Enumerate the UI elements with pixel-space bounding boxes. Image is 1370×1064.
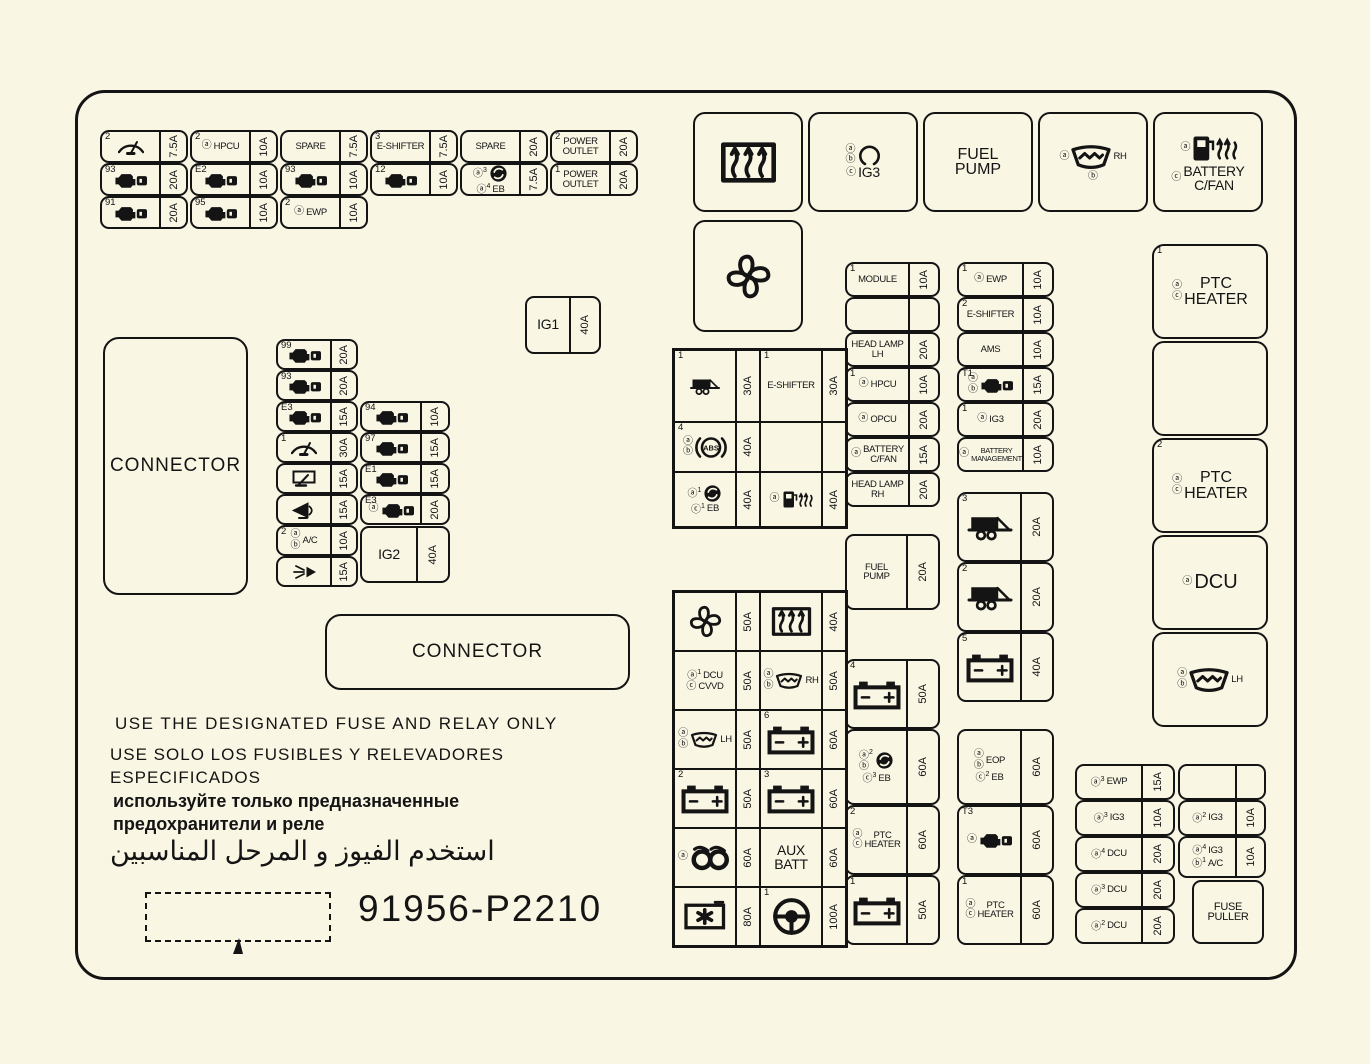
fuse-cell: E315A: [276, 401, 358, 432]
amp-cell: 10A: [429, 165, 456, 194]
amp-rating: 80A: [742, 907, 754, 927]
fuse-line: [768, 782, 814, 815]
horn-icon: [291, 501, 317, 519]
circled-b-mark: ⓑ: [683, 447, 693, 458]
amp-cell: 50A: [736, 710, 760, 769]
fuse-number: 93: [281, 372, 292, 382]
fuse-line: [735, 152, 762, 173]
fuse-line: [375, 470, 408, 488]
amp-cell: 20A: [908, 404, 938, 435]
amp-cell: 10A: [1235, 802, 1264, 834]
amp-rating: 50A: [917, 900, 929, 920]
amp-cell: 40A: [569, 298, 599, 352]
amp-rating: 20A: [618, 137, 630, 157]
fuse-number: 1: [678, 351, 683, 361]
amp-rating: 20A: [1031, 587, 1043, 607]
amp-rating: 20A: [1152, 844, 1164, 864]
amp-cell: 10A: [1022, 334, 1052, 365]
fuse-cell: [1178, 764, 1266, 800]
fuse-table-middle: 130A1E-SHIFTER30A4ⓐⓑABS40Aⓐ1ⓒ1EB40Aⓐ40A: [672, 348, 848, 529]
fuse-label: EB: [492, 185, 504, 194]
amp-rating: 10A: [1032, 270, 1044, 290]
fuse-label: FUEL PUMP: [955, 147, 1001, 177]
fuse-cell: 220A: [957, 562, 1054, 632]
fuse-number: 93: [105, 165, 116, 175]
fuse-line: ⓐ: [967, 831, 1012, 849]
wiper-rear-icon: [292, 470, 316, 487]
amp-rating: 15A: [338, 500, 350, 520]
amp-rating: 60A: [828, 789, 840, 809]
fuse-line: ⓐ3IG3: [1094, 812, 1124, 825]
amp-cell: 60A: [1020, 731, 1052, 803]
fuse-line: [294, 171, 327, 189]
fuse-line: ⓐⓑABS: [683, 435, 727, 460]
relay-box: CONNECTOR: [103, 337, 248, 595]
fuse-number: 3: [375, 132, 380, 142]
amp-rating: 10A: [1032, 340, 1044, 360]
fuse-line: [772, 605, 811, 638]
fuse-line: ⓒBATTERY C/FAN: [1171, 165, 1244, 192]
fuse-line: [288, 377, 321, 395]
amp-rating: 20A: [528, 137, 540, 157]
fuse-number: 2: [850, 807, 855, 817]
amp-rating: 15A: [1152, 772, 1164, 792]
amp-cell: 20A: [908, 334, 938, 365]
warning-text-spanish: USE SOLO LOS FUSIBLES Y RELEVADORES ESPE…: [110, 744, 504, 790]
engine-icon: [979, 831, 1012, 849]
warning-text-russian: используйте только предназначенные предо…: [113, 790, 459, 837]
fuse-number: 1: [962, 264, 967, 274]
fuse-label: A/C: [303, 536, 318, 545]
fuse-number: 12: [375, 165, 386, 175]
battery-icon: [964, 651, 1015, 683]
circled-a-mark: ⓐ: [1172, 475, 1182, 486]
spray-icon: [293, 564, 316, 580]
amp-cell: 7.5A: [339, 132, 366, 161]
amp-rating: 15A: [429, 438, 441, 458]
fuse-label: PTC HEATER: [1184, 276, 1248, 306]
circled-b-mark: ⓑ: [678, 740, 688, 751]
amp-rating: 20A: [918, 480, 930, 500]
fuse-cell: [760, 592, 822, 651]
fuse-cell: ⓐ: [674, 828, 736, 887]
amp-cell: 60A: [822, 710, 846, 769]
fuse-number: 2: [281, 527, 286, 537]
fuse-cell: HEAD LAMP LH20A: [845, 332, 940, 367]
fuse-number: T3: [962, 807, 973, 817]
fuse-cell: ⓐ3EWP15A: [1075, 764, 1175, 800]
fuse-number: 4: [850, 661, 855, 671]
amp-cell: 10A: [1022, 264, 1052, 295]
circled-a-mark: ⓐ: [967, 835, 977, 846]
fuse-line: [772, 897, 811, 936]
fuse-line: ⓐⓒPTC HEATER: [1172, 276, 1248, 306]
fuse-line: ⓐDCU: [1182, 573, 1237, 592]
amp-cell: 7.5A: [429, 132, 456, 161]
engine-icon: [204, 171, 237, 189]
fuse-cell: E210A: [190, 163, 278, 196]
circled-a-mark: ⓐ: [202, 141, 212, 152]
amp-rating: 10A: [1032, 305, 1044, 325]
fuse-number: 1: [555, 165, 560, 175]
abs-icon: ABS: [695, 435, 727, 460]
amp-rating: 10A: [918, 270, 930, 290]
fuse-number: E3: [281, 403, 293, 413]
fuse-cell: ⓐ1ⓒ1EB: [674, 472, 736, 527]
fuse-cell: ⓐ2IG310A: [1178, 800, 1266, 836]
engine-icon: [381, 501, 414, 519]
fuse-line: ⓐⓑEOP: [974, 750, 1005, 771]
fuse-label: MODULE: [858, 275, 897, 284]
amp-cell: 20A: [1141, 838, 1173, 870]
fuse-line: E-SHIFTER: [967, 310, 1014, 319]
amp-rating: 60A: [1031, 830, 1043, 850]
relay-row-top: ⓐⓑⓒIG3FUEL PUMPⓐRHⓑⓐⓒBATTERY C/FAN: [693, 112, 1263, 212]
fuse-column-bottom-right-a: ⓐ3EWP15Aⓐ3IG310Aⓐ4DCU20Aⓐ3DCU20Aⓐ2DCU20A: [1075, 764, 1175, 944]
fuse-label: EB: [878, 774, 890, 783]
fuse-label: LH: [1231, 675, 1243, 684]
fuse-line: [685, 900, 726, 933]
fuse-line: [768, 723, 814, 756]
fuse-number: 1: [962, 404, 967, 414]
engine-icon: [114, 171, 147, 189]
fuse-ig2: IG240A: [360, 526, 450, 583]
fuse-label: PTC HEATER: [1184, 470, 1248, 500]
amp-rating: 40A: [579, 315, 591, 335]
fuse-cell: 9120A: [100, 196, 188, 229]
amp-cell: 40A: [822, 472, 846, 527]
fuse-line: ⓐHPCU: [202, 141, 240, 152]
amp-rating: 30A: [828, 376, 840, 396]
circled-a-mark: ⓐ3: [1094, 812, 1108, 825]
amp-rating: 10A: [918, 375, 930, 395]
amp-cell: 10A: [339, 165, 366, 194]
coil-icon: [689, 843, 734, 872]
amp-cell: 50A: [736, 651, 760, 710]
fuse-cell: 450A: [845, 659, 940, 729]
fuse-label: CONNECTOR: [110, 457, 241, 475]
circled-a-mark: ⓐ: [851, 449, 861, 460]
fuse-cell: 15A: [276, 494, 358, 525]
fuse-cell: AMS10A: [957, 332, 1054, 367]
fuse-line: [969, 511, 1011, 543]
engine-icon: [204, 204, 237, 222]
fuse-cell: ⓐBATTERY C/FAN15A: [845, 437, 940, 472]
circled-a-mark: ⓐ: [678, 852, 688, 863]
fuse-cell: 1MODULE10A: [845, 262, 940, 297]
wiper-icon: [118, 138, 144, 155]
relay-box: ⓐⓑLH: [1152, 632, 1268, 727]
engine-icon: [114, 204, 147, 222]
fuse-label: CONNECTOR: [412, 643, 543, 661]
amp-rating: 50A: [742, 671, 754, 691]
fuse-line: [118, 138, 144, 155]
fuse-label: HPCU: [871, 380, 897, 389]
fuse-line: [690, 376, 720, 396]
amp-cell: 10A: [1141, 802, 1173, 834]
fuse-line: IG2: [378, 548, 400, 561]
fuse-cell: ⓐ1DCUⓒCVVD: [674, 651, 736, 710]
amp-rating: 20A: [429, 500, 441, 520]
amp-cell: 60A: [822, 828, 846, 887]
fuse-number: 1: [1157, 246, 1162, 256]
washer-icon: [1070, 143, 1112, 172]
fuse-line: ⓐ1: [688, 484, 723, 503]
fuse-cell: 1ⓐIG320A: [957, 402, 1054, 437]
amp-cell: 40A: [822, 592, 846, 651]
fuse-number: 1: [764, 351, 769, 361]
engine-icon: [375, 439, 408, 457]
relay-box: ⓐⓒBATTERY C/FAN: [1153, 112, 1263, 212]
amp-cell: 40A: [736, 422, 760, 472]
circled-a-mark: ⓐ2: [859, 749, 873, 762]
fuse-line: ⓒIG3: [846, 166, 880, 179]
fuse-label: FUSE PULLER: [1208, 902, 1249, 923]
fuse-line: ⓐOPCU: [858, 414, 896, 425]
fuse-label: OPCU: [870, 415, 896, 424]
amp-cell: 50A: [736, 769, 760, 828]
fuse-cell: 2E-SHIFTER10A: [957, 297, 1054, 332]
fuse-cell: 1210A: [370, 163, 458, 196]
amp-rating: 20A: [1152, 916, 1164, 936]
amp-cell: 20A: [1022, 404, 1052, 435]
amp-cell: 20A: [1020, 494, 1052, 560]
fuse-line: ⓐⓑRH: [763, 670, 818, 691]
fuse-label: BATTERY C/FAN: [1183, 165, 1244, 192]
amp-rating: 10A: [1245, 847, 1257, 867]
fuse-line: [293, 564, 316, 580]
fuse-number: 2: [678, 770, 683, 780]
fuse-line: ⓐBATTERY MANAGEMENT: [959, 447, 1022, 461]
fuse-cell: 9510A: [190, 196, 278, 229]
circled-a-mark: ⓐ1: [687, 669, 701, 682]
amp-rating: 10A: [338, 531, 350, 551]
fuse-line: [204, 204, 237, 222]
fuse-cell: E115A: [360, 463, 450, 494]
fuse-number: 2: [285, 198, 290, 208]
amp-cell: 20A: [609, 165, 636, 194]
fuse-line: [114, 204, 147, 222]
fuse-label: IG3: [1110, 813, 1124, 822]
fuse-line: ⓐ3EWP: [1091, 776, 1128, 789]
circled-b-mark: ⓑ: [763, 681, 773, 692]
fuse-line: [291, 439, 317, 456]
fuse-cell: IG140A: [525, 296, 601, 354]
amp-rating: 20A: [338, 345, 350, 365]
amp-cell: 60A: [736, 828, 760, 887]
fuse-number: 4: [678, 423, 683, 433]
fuse-line: CONNECTOR: [412, 643, 543, 661]
circled-a-mark: ⓐ3: [1091, 776, 1105, 789]
amp-rating: 20A: [918, 340, 930, 360]
amp-cell: 80A: [736, 887, 760, 946]
fuse-line: ⓒ2EB: [976, 771, 1004, 784]
circled-c-mark: ⓒ1: [691, 503, 705, 516]
amp-rating: 15A: [429, 469, 441, 489]
circled-a-mark: ⓐ: [678, 729, 688, 740]
amp-rating: 10A: [1032, 445, 1044, 465]
fuse-cell: ⓐ3DCU20A: [1075, 872, 1175, 908]
fuse-label: DCU: [703, 671, 723, 680]
fuse-table-bottom: 50A40Aⓐ1DCUⓒCVVD50AⓐⓑRH50AⓐⓑLH50A660A250…: [672, 590, 848, 948]
amp-cell: 30A: [330, 434, 356, 461]
fuse-cell: [674, 887, 736, 946]
fuse-line: ⓐBATTERY C/FAN: [851, 445, 904, 463]
relay-box: ⓐRHⓑ: [1038, 112, 1148, 212]
amp-rating: 7.5A: [168, 135, 180, 158]
defrost-icon: [720, 140, 777, 184]
fuse-label: IG1: [537, 318, 559, 331]
fuse-number: 1: [281, 434, 286, 444]
amp-rating: 10A: [429, 407, 441, 427]
fuse-cell: 9310A: [280, 163, 368, 196]
fuse-number: 2: [555, 132, 560, 142]
circled-a-mark: ⓐ: [977, 414, 987, 425]
amp-cell: 10A: [908, 264, 938, 295]
connector-box-left: CONNECTOR: [103, 337, 248, 595]
circled-a-mark: ⓐ: [763, 670, 773, 681]
fuse-line: ⓒCVVD: [686, 682, 723, 693]
fuse-line: ⓐⓑA/C: [291, 530, 318, 551]
amp-rating: 30A: [742, 376, 754, 396]
fuse-cell: [760, 422, 822, 472]
fuse-label: RH: [805, 676, 818, 685]
fuse-cell: ⓐ3ⓐ4EB7.5A: [460, 163, 548, 196]
amp-rating: 20A: [918, 410, 930, 430]
fuse-cell: 3: [760, 769, 822, 828]
circled-a-mark: ⓐ: [859, 379, 869, 390]
fuse-number: T1: [962, 369, 973, 379]
fuse-label: DCU: [1194, 573, 1237, 592]
amp-cell: 20A: [420, 496, 448, 523]
amp-cell: 60A: [906, 731, 938, 803]
amp-rating: 30A: [338, 438, 350, 458]
amp-rating: 40A: [1031, 657, 1043, 677]
circled-c-mark: ⓒ: [1172, 486, 1182, 497]
amp-rating: 50A: [917, 684, 929, 704]
fuse-number: 2: [962, 564, 967, 574]
amp-rating: 10A: [348, 170, 360, 190]
fuse-cell: 9920A: [276, 339, 358, 370]
fuse-label: DCU: [1107, 885, 1127, 894]
fuse-line: FUEL PUMP: [863, 563, 889, 581]
fuse-puller-box: FUSE PULLER: [1192, 880, 1264, 944]
fuse-number: 2: [195, 132, 200, 142]
accomp-icon: [683, 901, 727, 933]
amp-cell: 10A: [1022, 299, 1052, 330]
amp-rating: 40A: [427, 545, 439, 565]
washer-icon: [690, 730, 718, 749]
fuse-cell: 150A: [845, 875, 940, 945]
fuse-number: 1: [850, 369, 855, 379]
fuse-cell: ⓐⓑLH: [674, 710, 736, 769]
fuse-line: [288, 346, 321, 364]
fuse-label: POWER OUTLET: [563, 170, 599, 188]
amp-rating: 20A: [1032, 410, 1044, 430]
motor-icon: [875, 751, 894, 770]
fuse-label: CVVD: [698, 682, 723, 691]
amp-rating: 7.5A: [528, 168, 540, 191]
engine-icon: [288, 346, 321, 364]
label-placeholder-box: [145, 892, 331, 942]
amp-cell: 15A: [908, 439, 938, 470]
fuse-number: 1: [764, 888, 769, 898]
amp-cell: 100A: [822, 887, 846, 946]
fuel-heater-icon: [782, 489, 813, 510]
amp-cell: 60A: [822, 769, 846, 828]
relay-box: FUSE PULLER: [1192, 880, 1264, 944]
amp-rating: 7.5A: [348, 135, 360, 158]
circled-b-mark: ⓑ: [291, 541, 301, 552]
fuse-cell: 1ⓐHPCU10A: [845, 367, 940, 402]
fuse-line: ⓐEWP: [294, 207, 327, 218]
fuse-ig1: IG140A: [525, 296, 601, 354]
fuse-number: 95: [195, 198, 206, 208]
fuse-cell: [845, 297, 940, 332]
fuse-line: ⓐ3: [473, 165, 508, 183]
fuse-label: EB: [707, 504, 719, 513]
fuse-column-f: ⓐⓑEOPⓒ2EB60AT3ⓐ60A1ⓐⓒPTC HEATER60A: [957, 729, 1054, 945]
fuse-number: 1: [850, 264, 855, 274]
fuse-line: SPARE: [295, 142, 325, 151]
amp-cell: 10A: [1022, 439, 1052, 470]
fuse-label: POWER OUTLET: [563, 137, 599, 155]
circled-a-mark: ⓐ3: [1091, 884, 1105, 897]
trailer-icon: [967, 582, 1012, 612]
fuse-cell: [674, 592, 736, 651]
fuse-line: FUSE PULLER: [1208, 902, 1249, 923]
circled-c-mark: ⓒ: [852, 840, 862, 851]
amp-cell: 30A: [736, 350, 760, 422]
amp-rating: 60A: [917, 757, 929, 777]
amp-rating: 10A: [258, 137, 270, 157]
circled-a-mark: ⓐ3: [473, 167, 487, 180]
amp-cell: 15A: [420, 465, 448, 492]
amp-rating: 60A: [1031, 900, 1043, 920]
fuse-cell: 15A: [276, 556, 358, 587]
circled-a-mark: ⓐ: [974, 274, 984, 285]
fuse-line: [114, 171, 147, 189]
steering-icon: [771, 896, 812, 937]
amp-rating: 60A: [917, 830, 929, 850]
amp-cell: 20A: [1141, 874, 1173, 906]
engine-icon: [980, 376, 1013, 394]
trailer-icon: [690, 376, 720, 396]
engine-icon: [288, 377, 321, 395]
fuse-line: ⓐIG3: [977, 414, 1003, 425]
circled-a-mark: ⓐ2: [1091, 920, 1105, 933]
fuse-line: ⓐ: [770, 489, 813, 510]
amp-cell: 20A: [906, 536, 938, 608]
circled-a-mark: ⓐ4: [1091, 848, 1105, 861]
relay-column-right: 1ⓐⓒPTC HEATER2ⓐⓒPTC HEATERⓐDCUⓐⓑLH: [1152, 244, 1268, 727]
amp-cell: 10A: [249, 198, 276, 227]
fuse-line: AMS: [981, 345, 1001, 354]
fuse-line: ⓐ2DCU: [1091, 920, 1127, 933]
fuse-label: AUX BATT: [774, 844, 808, 871]
relay-box: 2ⓐⓒPTC HEATER: [1152, 438, 1268, 533]
fuse-cell: ⓐⓑRH: [760, 651, 822, 710]
fuse-label: IG3: [989, 415, 1003, 424]
fuse-cell: ⓐ4DCU20A: [1075, 836, 1175, 872]
circled-b-mark: ⓑ: [846, 155, 856, 166]
amp-cell: 7.5A: [519, 165, 546, 194]
circled-a-mark: ⓐ: [1182, 577, 1192, 588]
fuse-column-bottom-right-b: ⓐ2IG310Aⓐ4IG3ⓑ1A/C10A: [1178, 764, 1266, 878]
fuse-cell: 1ⓐEWP10A: [957, 262, 1054, 297]
fuse-line: FUEL PUMP: [955, 147, 1001, 177]
fan-icon: [720, 248, 777, 305]
